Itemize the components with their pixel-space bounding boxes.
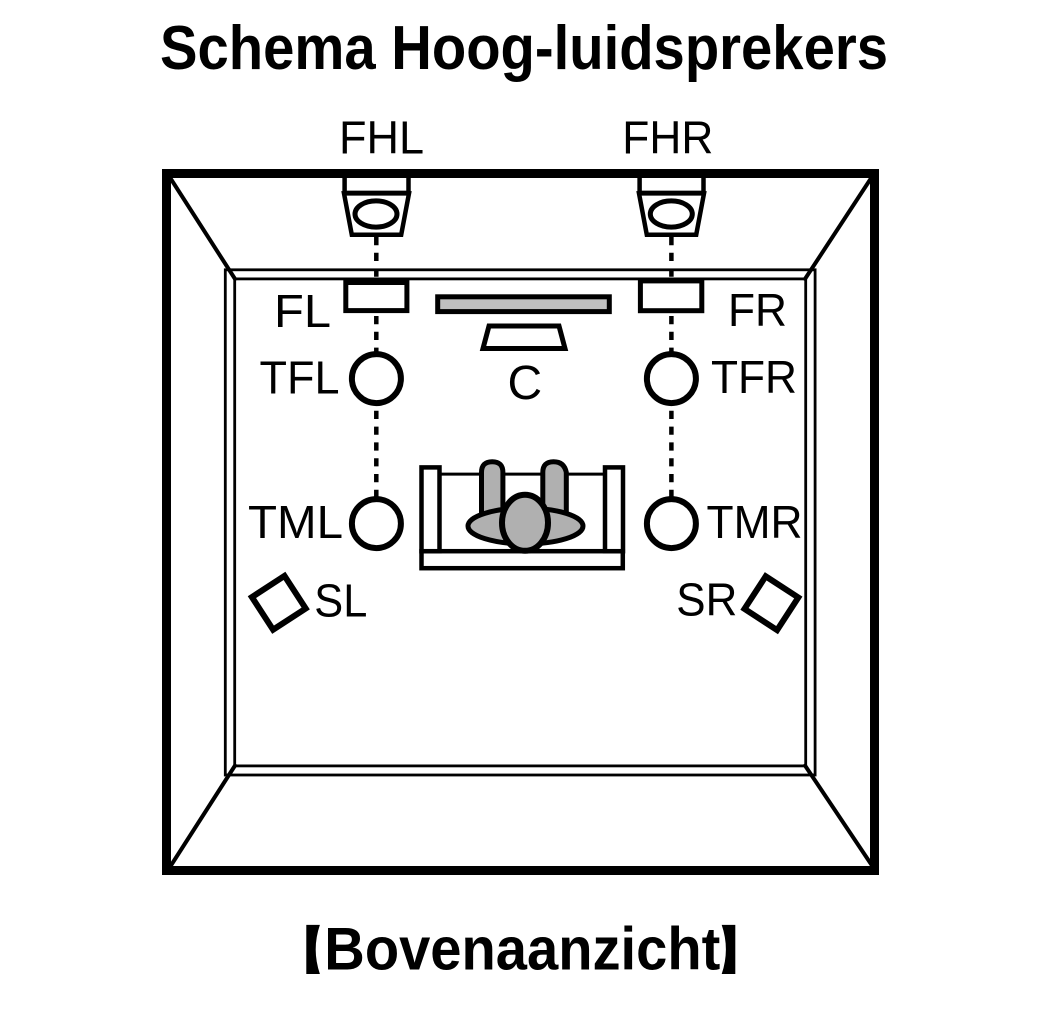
svg-text:TML: TML — [248, 496, 343, 548]
svg-text:FR: FR — [728, 284, 787, 336]
svg-text:SR: SR — [676, 574, 737, 626]
svg-text:Schema Hoog-luidsprekers: Schema Hoog-luidsprekers — [160, 14, 888, 83]
svg-text:SL: SL — [314, 574, 367, 626]
svg-text:TFR: TFR — [711, 351, 797, 403]
svg-text:TFL: TFL — [260, 352, 340, 404]
svg-text:FL: FL — [274, 285, 331, 337]
svg-text:TMR: TMR — [707, 496, 803, 548]
svg-text:Bovenaanzicht: Bovenaanzicht — [324, 915, 720, 982]
svg-text:FHL: FHL — [339, 112, 424, 164]
svg-text:FHR: FHR — [622, 112, 713, 164]
svg-text:C: C — [507, 357, 542, 410]
